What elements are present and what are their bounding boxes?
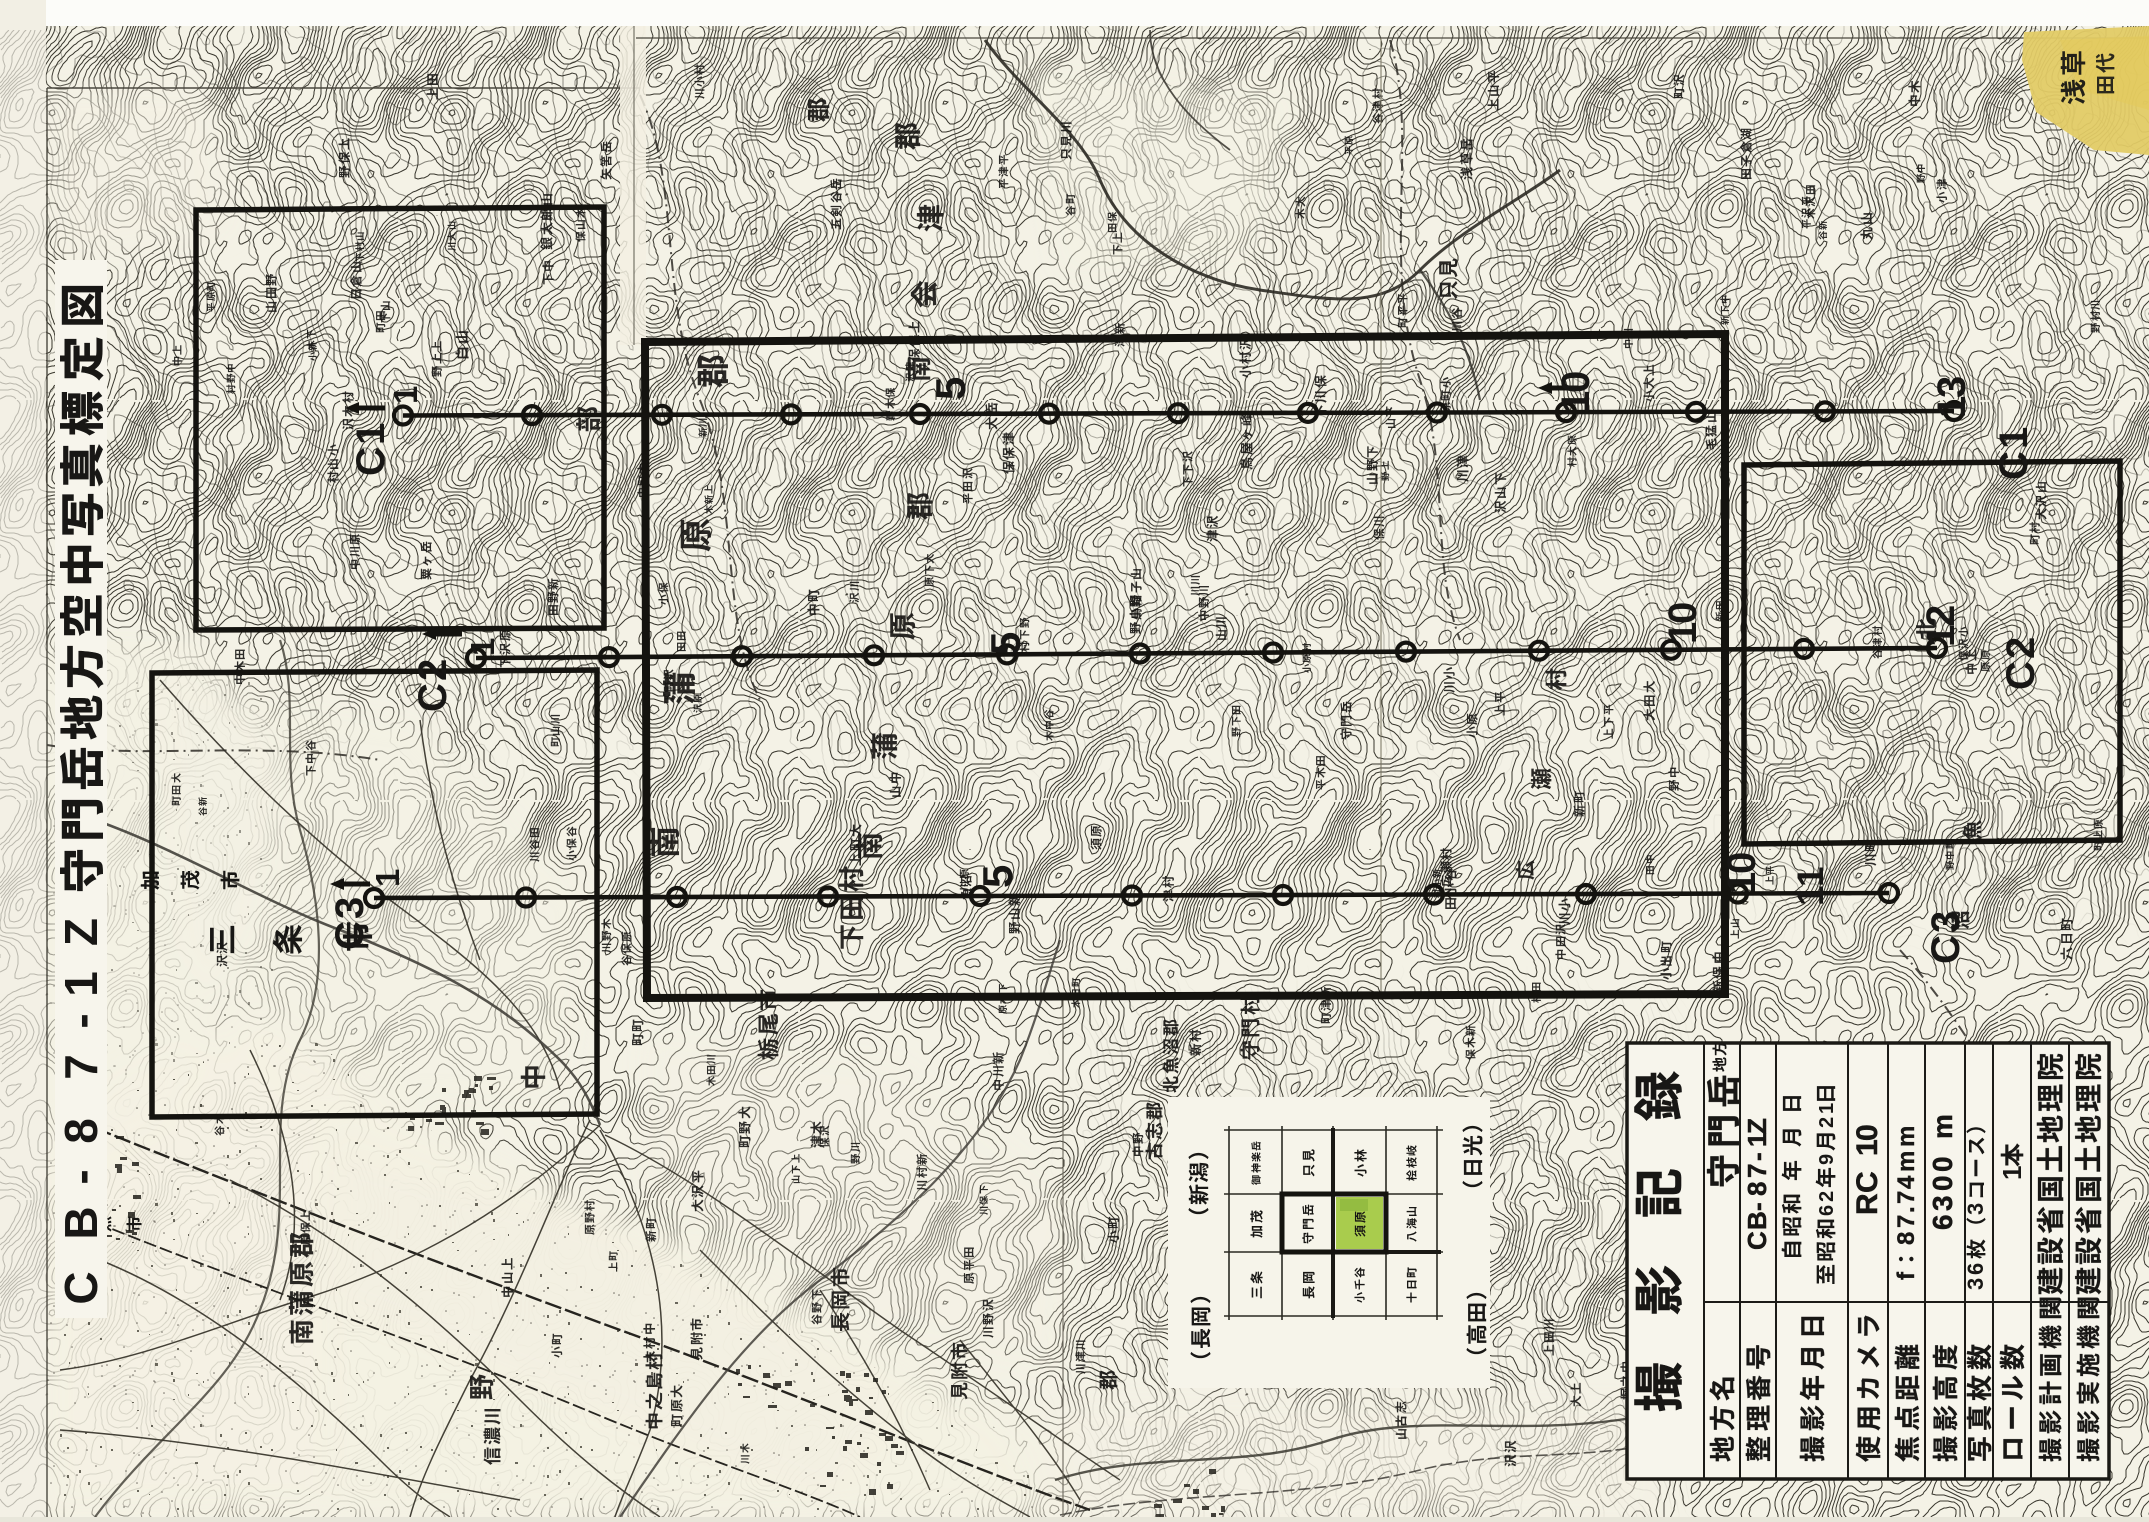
svg-text:m: m [1893, 1126, 1920, 1147]
svg-text:1: 1 [1930, 396, 1974, 418]
svg-text:6: 6 [1816, 1205, 1838, 1216]
svg-text:8: 8 [1742, 1182, 1772, 1196]
svg-text:0: 0 [1927, 1175, 1958, 1191]
svg-text:1: 1 [1554, 391, 1598, 413]
svg-text:-: - [55, 1013, 107, 1028]
svg-text:Z: Z [1742, 1118, 1772, 1134]
svg-text:3: 3 [1963, 1278, 1988, 1290]
svg-text:3: 3 [1963, 1203, 1988, 1215]
svg-text:1: 1 [1661, 622, 1705, 644]
svg-text:1: 1 [1919, 625, 1963, 647]
svg-text:2: 2 [1919, 605, 1963, 627]
svg-text:C: C [1999, 661, 2043, 690]
svg-text:8: 8 [1893, 1232, 1920, 1245]
svg-text:Z: Z [55, 918, 107, 946]
svg-text:-: - [55, 1169, 107, 1184]
svg-text:C: C [411, 683, 455, 712]
svg-text:7: 7 [1893, 1191, 1920, 1204]
svg-text:C: C [328, 921, 372, 950]
svg-text:C: C [55, 1271, 107, 1304]
svg-text:f: f [1893, 1271, 1920, 1280]
svg-text:0: 0 [1851, 1124, 1884, 1141]
svg-text:1: 1 [1816, 1103, 1838, 1114]
svg-text:-: - [1742, 1152, 1772, 1161]
svg-text:3: 3 [1930, 376, 1974, 398]
svg-text:1: 1 [1997, 1166, 2027, 1180]
svg-text:2: 2 [411, 659, 455, 681]
svg-text:5: 5 [982, 632, 1029, 655]
svg-text:1: 1 [387, 386, 424, 404]
svg-text:6: 6 [1963, 1263, 1988, 1275]
svg-text:C: C [1742, 1231, 1772, 1250]
svg-text:1: 1 [369, 869, 406, 887]
svg-text:7: 7 [1893, 1215, 1920, 1228]
svg-text:1: 1 [1992, 427, 2036, 449]
svg-text:9: 9 [1816, 1154, 1838, 1165]
svg-text:R: R [1851, 1193, 1884, 1215]
svg-text:-: - [1742, 1202, 1772, 1211]
svg-text:.: . [1893, 1206, 1920, 1213]
svg-text:1: 1 [1790, 885, 1831, 906]
svg-text:2: 2 [1816, 1117, 1838, 1128]
svg-text:B: B [1742, 1211, 1772, 1230]
svg-text:1: 1 [1790, 866, 1831, 887]
svg-text:3: 3 [328, 897, 372, 919]
svg-text:4: 4 [1893, 1175, 1920, 1189]
svg-text:7: 7 [55, 1054, 107, 1080]
svg-text:0: 0 [1554, 371, 1598, 393]
svg-text:1: 1 [55, 971, 107, 997]
svg-text:C: C [1851, 1171, 1884, 1193]
svg-text:3: 3 [1927, 1195, 1958, 1211]
svg-text:2: 2 [1816, 1191, 1838, 1202]
svg-text:1: 1 [464, 638, 501, 656]
svg-text:0: 0 [1927, 1156, 1958, 1172]
svg-text:5: 5 [974, 865, 1021, 888]
svg-text:1: 1 [349, 423, 393, 445]
svg-text:C: C [1992, 451, 2036, 480]
svg-text:B: B [55, 1206, 107, 1239]
svg-text:C: C [1924, 935, 1968, 964]
svg-text:m: m [1927, 1114, 1958, 1139]
svg-text:m: m [1893, 1151, 1920, 1172]
svg-text:6: 6 [1927, 1214, 1958, 1230]
svg-text:0: 0 [1661, 602, 1705, 624]
svg-text:5: 5 [927, 377, 974, 400]
svg-text:7: 7 [1742, 1164, 1772, 1178]
svg-text:8: 8 [55, 1118, 107, 1144]
svg-text:1: 1 [1720, 872, 1764, 894]
svg-text:0: 0 [1720, 852, 1764, 874]
svg-text:C: C [349, 447, 393, 476]
svg-text:3: 3 [1924, 911, 1968, 933]
svg-text:2: 2 [1999, 637, 2043, 659]
